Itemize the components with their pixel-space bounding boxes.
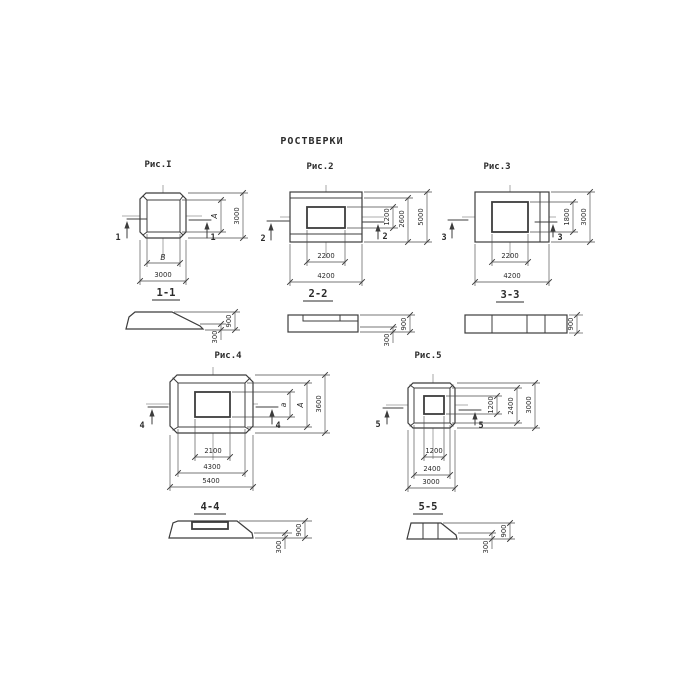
fig5-outer-outline [408, 383, 455, 428]
dim-label: 1800 [563, 208, 571, 225]
dim-label: 2400 [507, 397, 515, 414]
figure-5-section-label: 5-5 [419, 501, 438, 513]
dim-label: 900 [225, 315, 233, 328]
dim-label: 3000 [422, 478, 439, 486]
dim-label: 3600 [315, 395, 323, 412]
dim-label: 3000 [580, 208, 588, 225]
dim-label: 5000 [417, 208, 425, 225]
dim-label: 2400 [423, 465, 440, 473]
figure-4-section-label: 4-4 [201, 501, 220, 513]
dim-label: 900 [567, 318, 575, 331]
dim-label: 2200 [501, 252, 518, 260]
fig2-section-outline [288, 315, 358, 332]
section-mark-number: 2 [260, 234, 265, 244]
section-mark-number: 1 [115, 233, 120, 243]
dim-label: A [296, 402, 305, 408]
figure-1-section-label: 1-1 [157, 287, 176, 299]
dim-label: 900 [500, 525, 508, 538]
figure-2-label: Рис.2 [306, 162, 333, 172]
dim-label: 3000 [233, 207, 241, 224]
dim-label: 300 [275, 541, 283, 554]
section-mark-number: 3 [557, 233, 562, 243]
dim-label: 3000 [154, 271, 171, 279]
figure-3-section-label: 3-3 [501, 289, 520, 301]
dim-label: 4200 [317, 272, 334, 280]
paper-background [0, 0, 700, 700]
dim-label: 1200 [383, 208, 391, 225]
section-mark-number: 1 [210, 233, 215, 243]
dim-label: A [210, 213, 219, 219]
figure-3-section-view: 900 [465, 312, 583, 336]
fig3-section-outline [465, 315, 567, 333]
section-mark-number: 4 [139, 421, 144, 431]
dim-label: a [279, 402, 288, 407]
dim-label: 900 [400, 318, 408, 331]
dim-label: 300 [383, 334, 391, 347]
figure-1-label: Рис.I [144, 160, 171, 170]
section-mark-number: 3 [441, 233, 446, 243]
figure-2-section-label: 2-2 [309, 288, 328, 300]
dim-label: 900 [295, 524, 303, 537]
section-mark-number: 4 [275, 421, 280, 431]
dim-label: 5400 [202, 477, 219, 485]
dim-label: 2100 [204, 447, 221, 455]
dim-label: 1200 [425, 447, 442, 455]
figure-3-label: Рис.3 [483, 162, 510, 172]
figure-5-label: Рис.5 [414, 351, 441, 361]
figure-4-label: Рис.4 [214, 351, 242, 361]
dim-label: 4200 [503, 272, 520, 280]
section-mark-number: 5 [478, 421, 483, 431]
engineering-drawing: РОСТВЕРКИ Рис.I A 3000 [0, 0, 700, 700]
section-mark-number: 5 [375, 420, 380, 430]
fig3-outer-outline [475, 192, 549, 242]
dim-label: B [160, 253, 165, 262]
drawing-title: РОСТВЕРКИ [280, 136, 343, 147]
section-mark-number: 2 [382, 232, 387, 242]
fig4-outer-outline [170, 375, 253, 433]
dim-label: 1200 [487, 396, 495, 413]
dim-label: 2600 [398, 210, 406, 227]
dim-label: 300 [211, 331, 219, 344]
dim-label: 2200 [317, 252, 334, 260]
dim-label: 3000 [525, 396, 533, 413]
dim-label: 4300 [203, 463, 220, 471]
dim-label: 300 [482, 541, 490, 554]
